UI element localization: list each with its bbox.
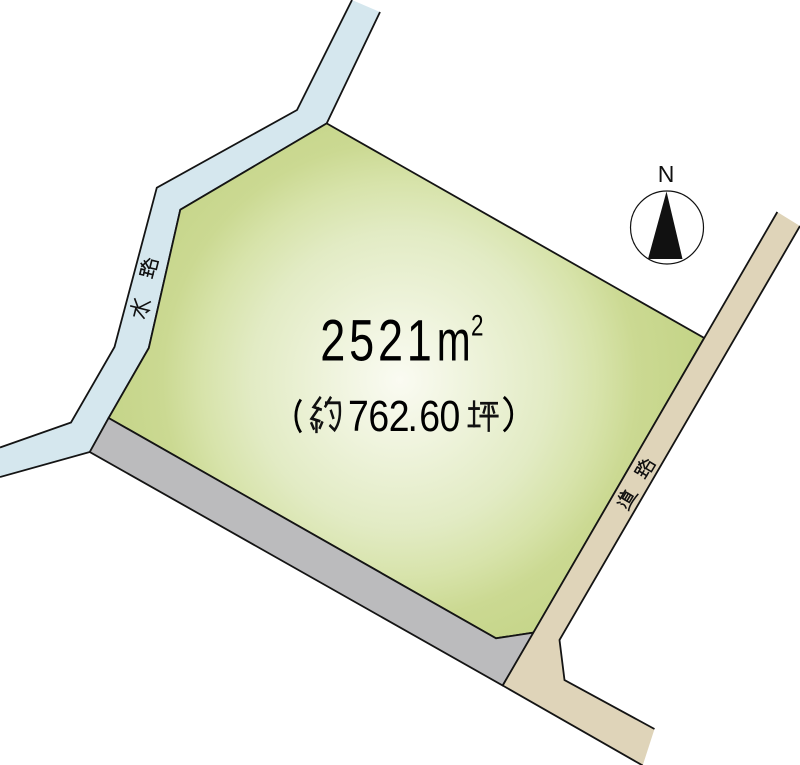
svg-text:1: 1	[407, 309, 432, 374]
svg-text:2: 2	[320, 309, 345, 374]
svg-text:2: 2	[378, 309, 403, 374]
svg-text:2: 2	[471, 308, 483, 342]
svg-text:6: 6	[419, 391, 440, 441]
svg-text:N: N	[658, 161, 675, 187]
svg-text:6: 6	[368, 391, 389, 441]
svg-text:.: .	[408, 391, 418, 441]
svg-text:2: 2	[389, 391, 410, 441]
svg-text:5: 5	[349, 309, 374, 374]
svg-text:0: 0	[440, 391, 461, 441]
svg-text:m: m	[437, 309, 471, 374]
svg-text:7: 7	[348, 391, 369, 441]
